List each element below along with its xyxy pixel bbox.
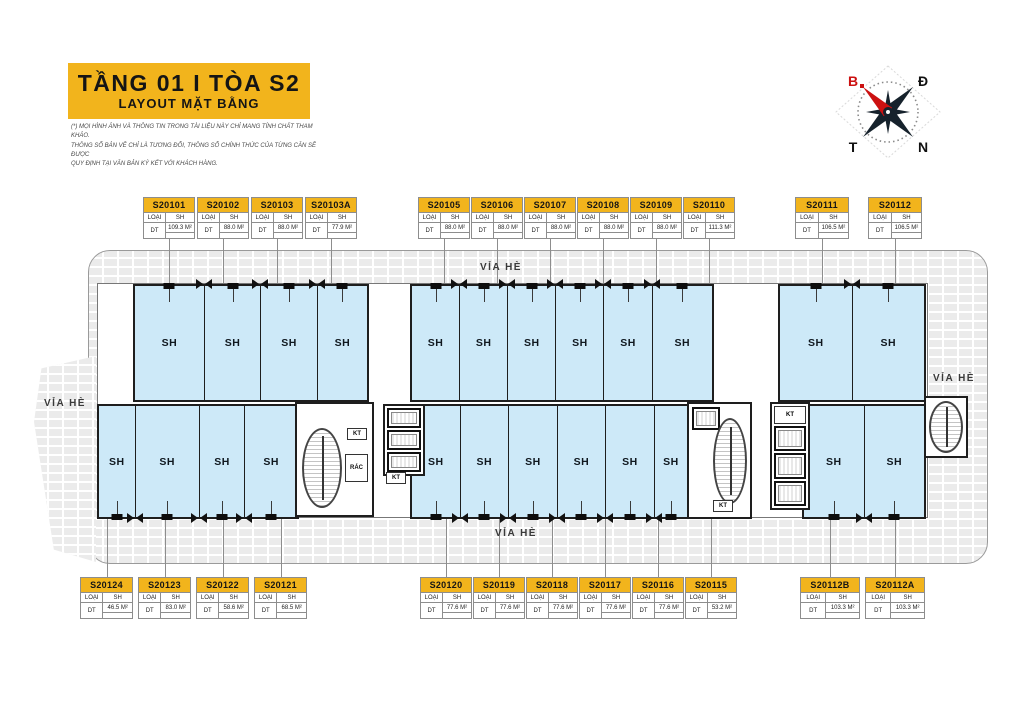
unit-type-row: LOẠISH: [252, 213, 302, 223]
area-value-wrap: 88.0 M²: [600, 223, 628, 238]
unit-area-row: DT77.6 M²: [527, 603, 577, 618]
door-stem: [533, 501, 534, 514]
door-bowtie-icon: [196, 279, 212, 290]
area-value: 77.6 M²: [549, 603, 577, 613]
room-type-label: SH: [335, 337, 351, 349]
elevator-icon: [774, 481, 806, 506]
floorplan-page: TẦNG 01 I TÒA S2 LAYOUT MẶT BẰNG (*) MỌI…: [0, 0, 1020, 722]
area-key: DT: [81, 603, 103, 618]
unit-area-row: DT77.9 M²: [306, 223, 356, 238]
area-blank: [328, 233, 356, 238]
label-leader-line: [711, 515, 712, 577]
type-value: SH: [274, 213, 302, 222]
area-blank: [494, 233, 522, 238]
door-bowtie-icon: [191, 513, 207, 524]
unit-area-row: DT88.0 M²: [472, 223, 522, 238]
label-leader-line: [709, 237, 710, 284]
area-key: DT: [252, 223, 274, 238]
label-leader-line: [223, 237, 224, 284]
unit-type-row: LOẠISH: [198, 213, 248, 223]
unit-code: S20111: [796, 198, 848, 213]
unit-label-card: S20112ALOẠISHDT103.3 M²: [865, 577, 925, 619]
door-bowtie-icon: [547, 279, 563, 290]
type-value: SH: [892, 213, 921, 222]
area-value: 88.0 M²: [494, 223, 522, 233]
unit-label-card: S20105LOẠISHDT88.0 M²: [418, 197, 470, 239]
area-value-wrap: 111.3 M²: [706, 223, 734, 238]
unit-label-card: S20122LOẠISHDT58.6 M²: [196, 577, 249, 619]
label-leader-line: [658, 515, 659, 577]
door-bowtie-icon: [452, 513, 468, 524]
area-value: 77.6 M²: [496, 603, 524, 613]
shophouse-room: SH: [460, 406, 509, 517]
shophouse-room: SH: [204, 286, 261, 400]
area-value-wrap: 68.5 M²: [277, 603, 306, 618]
unit-type-row: LOẠISH: [421, 593, 471, 603]
facade-column-marker: [111, 514, 122, 520]
unit-area-row: DT77.6 M²: [580, 603, 630, 618]
type-key: LOẠI: [801, 593, 826, 602]
label-leader-line: [165, 515, 166, 577]
door-stem: [169, 289, 170, 302]
unit-area-row: DT77.6 M²: [474, 603, 524, 618]
unit-area-row: DT103.3 M²: [801, 603, 859, 618]
room-type-label: SH: [826, 456, 842, 468]
unit-label-card: S20103LOẠISHDT88.0 M²: [251, 197, 303, 239]
staircase-icon: [713, 418, 747, 504]
door-stem: [581, 501, 582, 514]
unit-label-card: S20118LOẠISHDT77.6 M²: [526, 577, 578, 619]
shophouse-room: SH: [555, 286, 603, 400]
room-type-label: SH: [109, 456, 125, 468]
door-stem: [580, 289, 581, 302]
room-type-label: SH: [663, 456, 679, 468]
area-blank: [547, 233, 575, 238]
label-leader-line: [223, 515, 224, 577]
door-stem: [894, 501, 895, 514]
area-value-wrap: 77.6 M²: [602, 603, 630, 618]
type-key: LOẠI: [255, 593, 277, 602]
area-value: 88.0 M²: [653, 223, 681, 233]
type-key: LOẠI: [81, 593, 103, 602]
label-leader-line: [107, 515, 108, 577]
door-bowtie-icon: [856, 513, 872, 524]
type-key: LOẠI: [580, 593, 602, 602]
area-blank: [443, 613, 471, 618]
shophouse-room: SH: [864, 406, 925, 517]
door-stem: [484, 289, 485, 302]
door-stem: [834, 501, 835, 514]
label-leader-line: [497, 237, 498, 284]
elevator-bank-left: [383, 404, 425, 476]
unit-type-row: LOẠISH: [144, 213, 194, 223]
type-key: LOẠI: [631, 213, 653, 222]
label-leader-line: [605, 515, 606, 577]
door-stem: [816, 289, 817, 302]
room-type-label: SH: [525, 456, 541, 468]
area-value: 58.6 M²: [219, 603, 248, 613]
unit-code: S20121: [255, 578, 306, 593]
area-key: DT: [631, 223, 653, 238]
unit-area-row: DT77.6 M²: [421, 603, 471, 618]
room-type-label: SH: [524, 337, 540, 349]
unit-code: S20123: [139, 578, 190, 593]
area-key: DT: [801, 603, 826, 618]
type-key: LOẠI: [252, 213, 274, 222]
area-blank: [706, 233, 734, 238]
unit-area-row: DT88.0 M²: [631, 223, 681, 238]
kt-room-label: KT: [386, 472, 406, 484]
facade-column-marker: [217, 514, 228, 520]
unit-label-card: S20103ALOẠISHDT77.9 M²: [305, 197, 357, 239]
unit-type-row: LOẠISH: [255, 593, 306, 603]
area-value-wrap: 88.0 M²: [494, 223, 522, 238]
type-key: LOẠI: [686, 593, 708, 602]
area-blank: [708, 613, 736, 618]
kt-room-label: KT: [347, 428, 367, 440]
block-bottom-mid: SHSHSHSHSHSH: [410, 404, 689, 519]
unit-area-row: DT88.0 M²: [419, 223, 469, 238]
door-bowtie-icon: [252, 279, 268, 290]
area-key: DT: [474, 603, 496, 618]
area-blank: [602, 613, 630, 618]
area-key: DT: [255, 603, 277, 618]
area-value-wrap: 103.3 M²: [826, 603, 859, 618]
area-value-wrap: 58.6 M²: [219, 603, 248, 618]
area-blank: [277, 613, 306, 618]
stair-core-right: KT: [687, 402, 752, 519]
unit-label-card: S20110LOẠISHDT111.3 M²: [683, 197, 735, 239]
room-type-label: SH: [428, 337, 444, 349]
staircase-icon: [302, 428, 342, 508]
unit-label-card: S20119LOẠISHDT77.6 M²: [473, 577, 525, 619]
trash-room-label: RÁC: [345, 454, 368, 482]
type-key: LOẠI: [306, 213, 328, 222]
label-leader-line: [281, 515, 282, 577]
area-key: DT: [869, 223, 892, 238]
unit-type-row: LOẠISH: [474, 593, 524, 603]
label-leader-line: [550, 237, 551, 284]
block-top-right: SHSH: [778, 284, 926, 402]
type-key: LOẠI: [419, 213, 441, 222]
type-value: SH: [655, 593, 683, 602]
area-value-wrap: 106.5 M²: [892, 223, 921, 238]
area-value-wrap: 77.6 M²: [655, 603, 683, 618]
area-value: 77.6 M²: [443, 603, 471, 613]
type-key: LOẠI: [139, 593, 161, 602]
unit-label-card: S20107LOẠISHDT88.0 M²: [524, 197, 576, 239]
room-type-label: SH: [622, 456, 638, 468]
unit-type-row: LOẠISH: [306, 213, 356, 223]
room-type-label: SH: [214, 456, 230, 468]
sidewalk-label-bottom: VỈA HÈ: [495, 528, 537, 539]
kt-label: KT: [353, 431, 361, 437]
unit-code: S20120: [421, 578, 471, 593]
door-bowtie-icon: [451, 279, 467, 290]
area-value-wrap: 77.6 M²: [549, 603, 577, 618]
type-value: SH: [600, 213, 628, 222]
facade-column-marker: [576, 514, 587, 520]
room-type-label: SH: [574, 456, 590, 468]
unit-type-row: LOẠISH: [686, 593, 736, 603]
door-stem: [342, 289, 343, 302]
area-value: 77.9 M²: [328, 223, 356, 233]
unit-code: S20110: [684, 198, 734, 213]
title-box: TẦNG 01 I TÒA S2 LAYOUT MẶT BẰNG: [68, 63, 310, 119]
door-stem: [628, 289, 629, 302]
door-bowtie-icon: [549, 513, 565, 524]
disclaimer-line: (*) MỌI HÌNH ẢNH VÀ THÔNG TIN TRONG TÀI …: [71, 123, 331, 142]
page-subtitle: LAYOUT MẶT BẰNG: [119, 96, 260, 111]
door-stem: [222, 501, 223, 514]
unit-label-card: S20124LOẠISHDT46.5 M²: [80, 577, 133, 619]
type-key: LOẠI: [197, 593, 219, 602]
unit-label-card: S20117LOẠISHDT77.6 M²: [579, 577, 631, 619]
disclaimer-line: THÔNG SỐ BẢN VẼ CHỈ LÀ TƯƠNG ĐỐI, THÔNG …: [71, 142, 331, 161]
page-title: TẦNG 01 I TÒA S2: [78, 71, 301, 95]
facade-column-marker: [266, 514, 277, 520]
facade-column-marker: [162, 514, 173, 520]
unit-area-row: DT106.5 M²: [796, 223, 848, 238]
door-bowtie-icon: [309, 279, 325, 290]
area-key: DT: [419, 223, 441, 238]
room-type-label: SH: [808, 337, 824, 349]
door-stem: [532, 289, 533, 302]
kt-room-label: KT: [713, 500, 733, 512]
area-value-wrap: 88.0 M²: [547, 223, 575, 238]
room-type-label: SH: [620, 337, 636, 349]
shophouse-room: SH: [508, 406, 557, 517]
type-value: SH: [549, 593, 577, 602]
sidewalk-label-top: VỈA HÈ: [480, 262, 522, 273]
unit-area-row: DT83.0 M²: [139, 603, 190, 618]
area-key: DT: [197, 603, 219, 618]
area-blank: [166, 233, 194, 238]
door-bowtie-icon: [644, 279, 660, 290]
unit-type-row: LOẠISH: [472, 213, 522, 223]
shophouse-room: SH: [260, 286, 317, 400]
unit-type-row: LOẠISH: [578, 213, 628, 223]
area-key: DT: [421, 603, 443, 618]
sidewalk-area-left: [34, 356, 96, 562]
room-type-label: SH: [477, 456, 493, 468]
type-key: LOẠI: [796, 213, 819, 222]
unit-code: S20112A: [866, 578, 924, 593]
area-blank: [219, 613, 248, 618]
area-blank: [655, 613, 683, 618]
unit-code: S20103A: [306, 198, 356, 213]
door-bowtie-icon: [499, 279, 515, 290]
unit-type-row: LOẠISH: [139, 593, 190, 603]
area-blank: [441, 233, 469, 238]
compass-rose-icon: B Đ T N: [832, 60, 944, 164]
area-value: 106.5 M²: [892, 223, 921, 233]
door-bowtie-icon: [844, 279, 860, 290]
room-type-label: SH: [476, 337, 492, 349]
compass-east-label: Đ: [918, 73, 928, 89]
shophouse-room: SH: [135, 286, 204, 400]
type-value: SH: [443, 593, 471, 602]
area-key: DT: [796, 223, 819, 238]
area-blank: [653, 233, 681, 238]
unit-code: S20119: [474, 578, 524, 593]
area-value-wrap: 77.6 M²: [496, 603, 524, 618]
sidewalk-label-left: VỈA HÈ: [44, 398, 86, 409]
area-key: DT: [472, 223, 494, 238]
shophouse-room: SH: [804, 406, 864, 517]
type-key: LOẠI: [527, 593, 549, 602]
kt-label: KT: [719, 503, 727, 509]
unit-label-card: S20116LOẠISHDT77.6 M²: [632, 577, 684, 619]
shophouse-room: SH: [317, 286, 367, 400]
unit-type-row: LOẠISH: [796, 213, 848, 223]
kt-label: KT: [392, 475, 400, 481]
stair-core-left: KT RÁC: [295, 402, 374, 517]
block-bottom-left: SHSHSHSH: [97, 404, 299, 519]
unit-type-row: LOẠISH: [633, 593, 683, 603]
door-stem: [117, 501, 118, 514]
area-value: 103.3 M²: [826, 603, 859, 613]
unit-type-row: LOẠISH: [801, 593, 859, 603]
unit-label-card: S20112LOẠISHDT106.5 M²: [868, 197, 922, 239]
area-key: DT: [198, 223, 220, 238]
elevator-bank-right: KT: [770, 402, 810, 510]
type-key: LOẠI: [421, 593, 443, 602]
door-stem: [630, 501, 631, 514]
elevator-icon: [387, 452, 421, 472]
unit-type-row: LOẠISH: [197, 593, 248, 603]
unit-code: S20112B: [801, 578, 859, 593]
type-value: SH: [653, 213, 681, 222]
shophouse-room: SH: [557, 406, 606, 517]
area-value-wrap: 88.0 M²: [653, 223, 681, 238]
unit-type-row: LOẠISH: [684, 213, 734, 223]
unit-label-card: S20109LOẠISHDT88.0 M²: [630, 197, 682, 239]
area-key: DT: [578, 223, 600, 238]
label-leader-line: [830, 515, 831, 577]
unit-code: S20106: [472, 198, 522, 213]
door-stem: [682, 289, 683, 302]
block-top-mid: SHSHSHSHSHSH: [410, 284, 714, 402]
area-key: DT: [686, 603, 708, 618]
area-key: DT: [866, 603, 891, 618]
unit-type-row: LOẠISH: [869, 213, 921, 223]
unit-code: S20107: [525, 198, 575, 213]
unit-area-row: DT88.0 M²: [252, 223, 302, 238]
label-leader-line: [822, 237, 823, 284]
unit-area-row: DT88.0 M²: [578, 223, 628, 238]
unit-type-row: LOẠISH: [580, 593, 630, 603]
compass-south-label: N: [918, 139, 928, 155]
facade-column-marker: [624, 514, 635, 520]
unit-area-row: DT58.6 M²: [197, 603, 248, 618]
area-value: 68.5 M²: [277, 603, 306, 613]
room-type-label: SH: [674, 337, 690, 349]
shophouse-room: SH: [459, 286, 507, 400]
area-value-wrap: 106.5 M²: [819, 223, 848, 238]
area-key: DT: [580, 603, 602, 618]
room-type-label: SH: [225, 337, 241, 349]
disclaimer-line: QUY ĐỊNH TẠI VĂN BẢN KÝ KẾT VỚI KHÁCH HÀ…: [71, 160, 331, 169]
shophouse-room: SH: [99, 406, 135, 517]
area-key: DT: [633, 603, 655, 618]
type-key: LOẠI: [472, 213, 494, 222]
type-value: SH: [494, 213, 522, 222]
facade-column-marker: [430, 514, 441, 520]
area-blank: [600, 233, 628, 238]
door-bowtie-icon: [127, 513, 143, 524]
room-type-label: SH: [428, 456, 444, 468]
unit-label-card: S20112BLOẠISHDT103.3 M²: [800, 577, 860, 619]
unit-type-row: LOẠISH: [631, 213, 681, 223]
unit-label-card: S20101LOẠISHDT109.3 M²: [143, 197, 195, 239]
unit-area-row: DT109.3 M²: [144, 223, 194, 238]
unit-area-row: DT88.0 M²: [198, 223, 248, 238]
unit-label-card: S20123LOẠISHDT83.0 M²: [138, 577, 191, 619]
room-type-label: SH: [162, 337, 178, 349]
area-value: 88.0 M²: [547, 223, 575, 233]
unit-code: S20105: [419, 198, 469, 213]
area-value: 103.3 M²: [891, 603, 924, 613]
disclaimer-text: (*) MỌI HÌNH ẢNH VÀ THÔNG TIN TRONG TÀI …: [71, 123, 331, 169]
unit-area-row: DT46.5 M²: [81, 603, 132, 618]
unit-label-card: S20111LOẠISHDT106.5 M²: [795, 197, 849, 239]
area-value: 83.0 M²: [161, 603, 190, 613]
door-stem: [484, 501, 485, 514]
type-value: SH: [441, 213, 469, 222]
type-value: SH: [496, 593, 524, 602]
type-key: LOẠI: [144, 213, 166, 222]
area-blank: [220, 233, 248, 238]
type-value: SH: [891, 593, 924, 602]
area-key: DT: [525, 223, 547, 238]
kt-label: KT: [786, 412, 794, 418]
area-value-wrap: 88.0 M²: [441, 223, 469, 238]
door-bowtie-icon: [597, 513, 613, 524]
elevator-icon: [692, 407, 720, 430]
area-blank: [826, 613, 859, 618]
external-stair-right: [924, 396, 968, 458]
type-key: LOẠI: [198, 213, 220, 222]
area-value: 111.3 M²: [706, 223, 734, 233]
shophouse-room: SH: [654, 406, 687, 517]
unit-area-row: DT103.3 M²: [866, 603, 924, 618]
door-bowtie-icon: [236, 513, 252, 524]
area-value-wrap: 83.0 M²: [161, 603, 190, 618]
unit-area-row: DT106.5 M²: [869, 223, 921, 238]
type-value: SH: [602, 593, 630, 602]
unit-code: S20122: [197, 578, 248, 593]
area-value: 53.2 M²: [708, 603, 736, 613]
unit-type-row: LOẠISH: [525, 213, 575, 223]
room-type-label: SH: [572, 337, 588, 349]
type-value: SH: [166, 213, 194, 222]
area-key: DT: [144, 223, 166, 238]
unit-label-card: S20106LOẠISHDT88.0 M²: [471, 197, 523, 239]
label-leader-line: [331, 237, 332, 284]
area-key: DT: [306, 223, 328, 238]
unit-type-row: LOẠISH: [81, 593, 132, 603]
compass-north-label: B: [848, 73, 858, 89]
type-key: LOẠI: [866, 593, 891, 602]
door-stem: [233, 289, 234, 302]
shophouse-room: SH: [412, 286, 459, 400]
facade-column-marker: [665, 514, 676, 520]
area-value: 77.6 M²: [655, 603, 683, 613]
room-type-label: SH: [886, 456, 902, 468]
type-key: LOẠI: [578, 213, 600, 222]
shophouse-room: SH: [244, 406, 297, 517]
